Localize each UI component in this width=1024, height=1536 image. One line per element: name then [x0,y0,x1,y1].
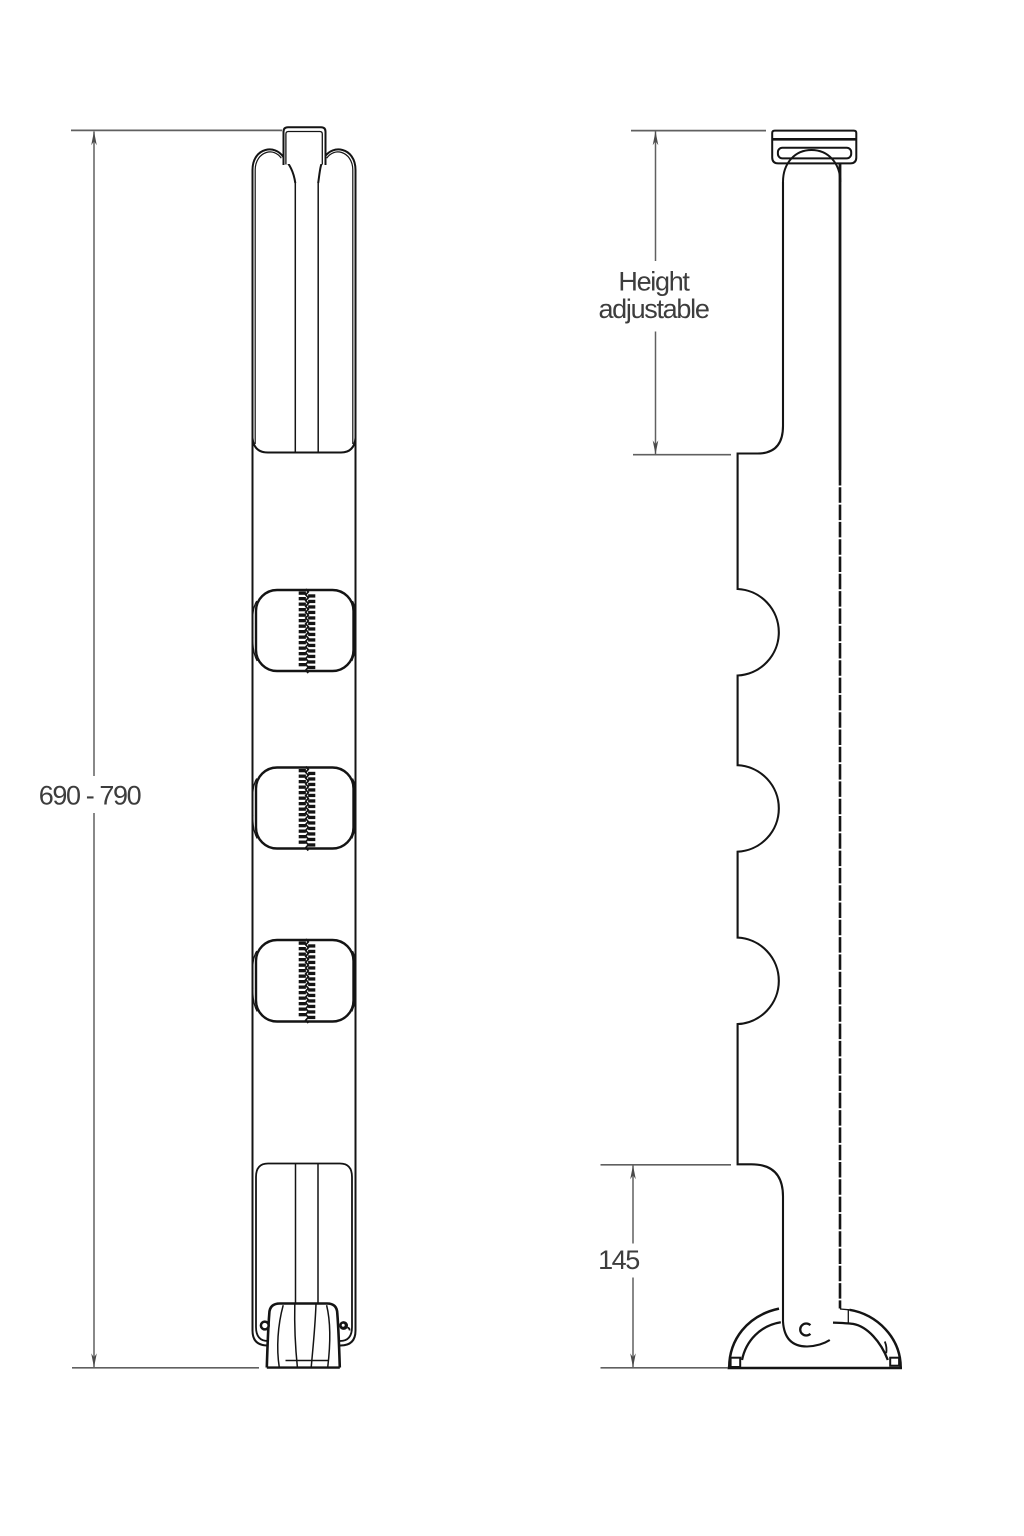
svg-text:Height: Height [618,266,690,296]
svg-text:690 - 790: 690 - 790 [39,781,141,811]
svg-text:145: 145 [598,1245,639,1275]
svg-text:adjustable: adjustable [598,294,708,324]
